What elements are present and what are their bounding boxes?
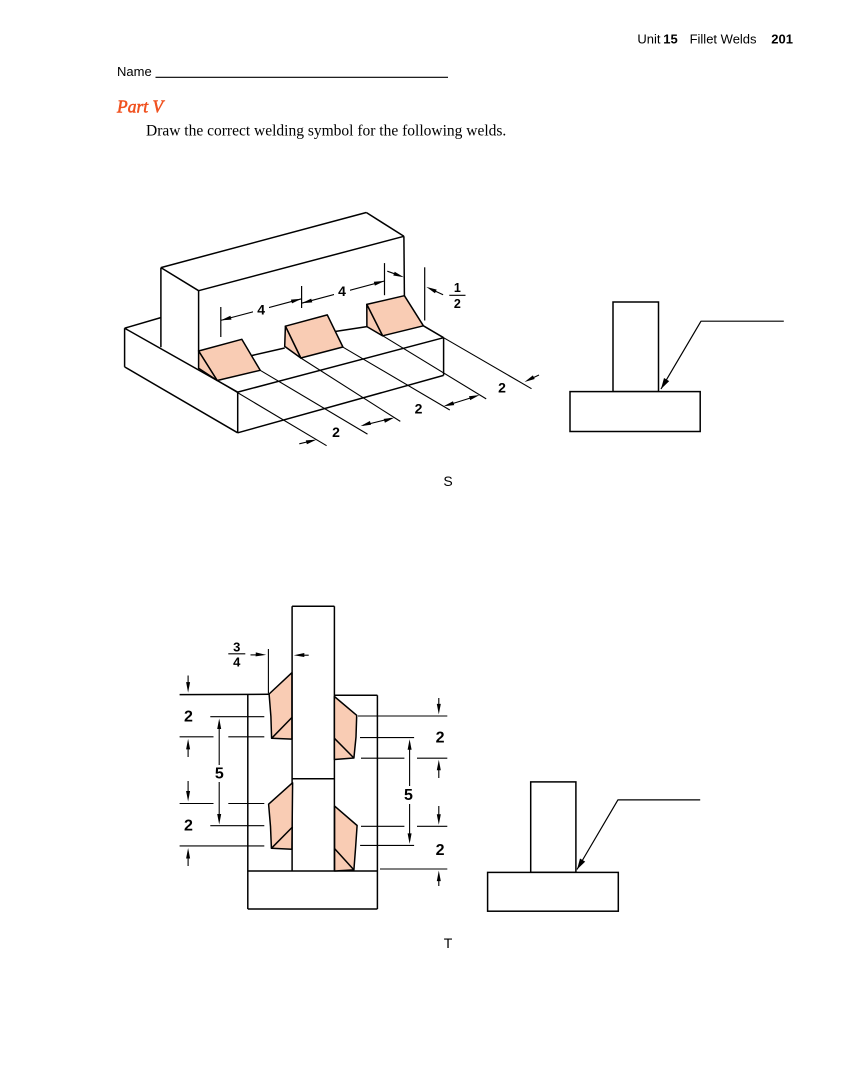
svg-text:Name: Name xyxy=(117,64,152,79)
svg-text:2: 2 xyxy=(332,424,340,440)
svg-text:5: 5 xyxy=(404,787,413,804)
svg-text:2: 2 xyxy=(436,842,445,859)
svg-text:2: 2 xyxy=(184,818,193,835)
svg-text:4: 4 xyxy=(257,301,265,317)
svg-text:4: 4 xyxy=(338,283,346,299)
svg-text:2: 2 xyxy=(436,730,445,747)
svg-text:3: 3 xyxy=(233,639,240,654)
svg-text:Fillet Welds: Fillet Welds xyxy=(690,32,757,47)
svg-text:201: 201 xyxy=(771,32,793,47)
svg-text:15: 15 xyxy=(663,32,677,47)
svg-text:1: 1 xyxy=(454,281,461,295)
svg-text:Part V: Part V xyxy=(116,97,165,117)
svg-text:2: 2 xyxy=(454,297,461,311)
svg-text:2: 2 xyxy=(184,709,193,726)
svg-text:Draw the correct welding symbo: Draw the correct welding symbol for the … xyxy=(146,122,506,139)
svg-text:T: T xyxy=(444,935,453,951)
svg-text:Unit: Unit xyxy=(637,32,661,47)
svg-text:4: 4 xyxy=(233,654,241,669)
svg-text:2: 2 xyxy=(415,400,423,416)
svg-text:S: S xyxy=(443,473,452,489)
svg-text:5: 5 xyxy=(215,766,224,783)
svg-text:2: 2 xyxy=(498,380,506,396)
